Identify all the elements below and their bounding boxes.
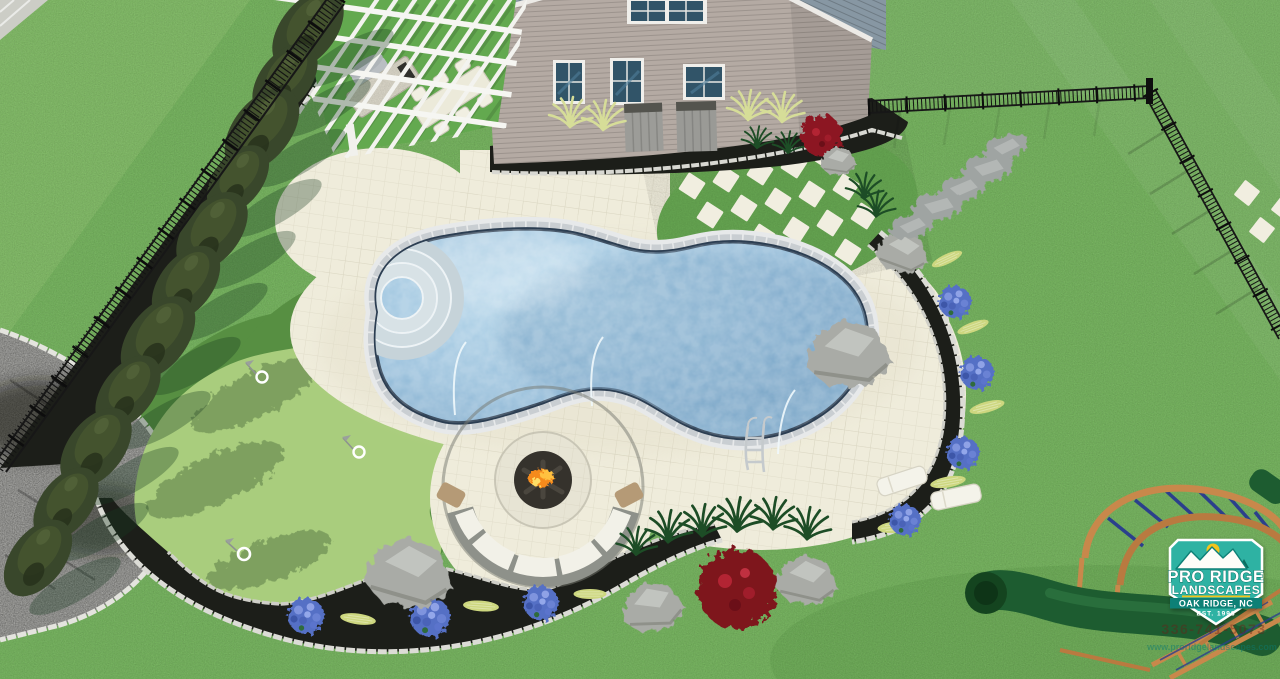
logo-rule [1182,596,1250,598]
landscape-scene: PRO RIDGE LANDSCAPES OAK RIDGE, NC EST. … [0,0,1280,679]
window [553,60,585,104]
fire-flames [528,469,554,487]
cellar-door [624,103,664,152]
cellar-door [676,101,717,152]
fence-corner-post [1146,78,1153,104]
window [683,64,725,100]
watermark-website: www.proridgelandscapes.com [1146,642,1277,652]
logo-established: EST. 1998 [1197,611,1236,618]
logo-name-line2: LANDSCAPES [1172,583,1261,597]
attic-window [627,0,707,24]
watermark-phone: 336-741-5073 [1161,621,1266,637]
logo-watermark: 336-741-5073 www.proridgelandscapes.com [1146,621,1277,652]
window [610,58,644,105]
logo-location: OAK RIDGE, NC [1179,599,1253,609]
backyard-design-rendering: PRO RIDGE LANDSCAPES OAK RIDGE, NC EST. … [0,0,1280,679]
